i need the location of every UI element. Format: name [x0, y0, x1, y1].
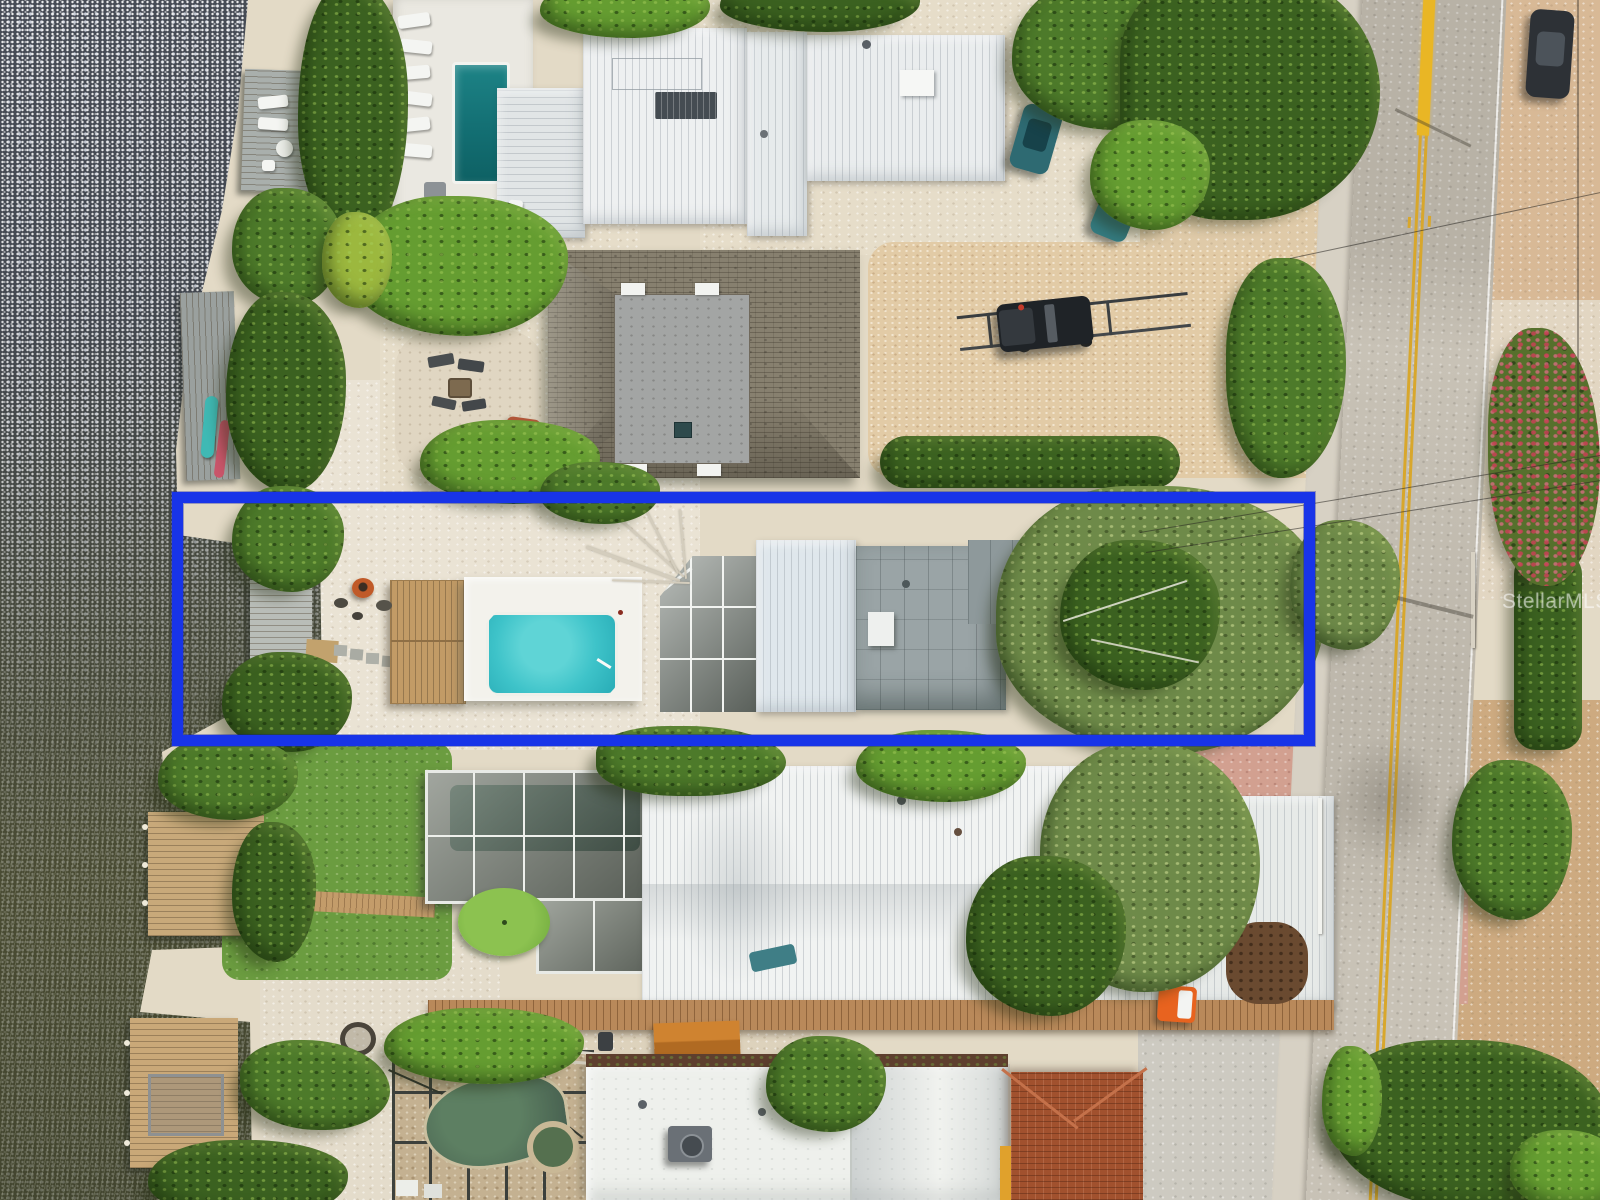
yellow-dash-1 [1408, 217, 1412, 228]
enclosure-shade [428, 773, 670, 901]
aerial-photo-scene: StellarMLS [0, 0, 1600, 1200]
gray-car [1525, 9, 1575, 100]
trash-bin [598, 1032, 613, 1051]
driveway-hedge-south [880, 436, 1180, 488]
roof-vent-dot [758, 1108, 766, 1116]
roof-flat-center [614, 294, 750, 464]
terracotta-ridge [1073, 1067, 1148, 1122]
skylight [697, 464, 721, 476]
trailer-crossbar [986, 313, 993, 348]
round-planter [660, 1086, 678, 1104]
yellow-dash-2 [1428, 216, 1432, 227]
bottom-right-palm [1510, 1130, 1600, 1200]
roof-vent-dot [954, 828, 962, 836]
extension-frame-v [593, 901, 595, 971]
boat-lift-frame [148, 1074, 224, 1136]
white-fence-gate [1318, 798, 1322, 934]
dock-piling [142, 824, 148, 830]
enclosure-frame-v [573, 773, 575, 901]
enclosure-frame-v [523, 773, 525, 901]
top-right-palm [1090, 120, 1210, 230]
roof-ac-unit [668, 1126, 712, 1162]
mangrove-by-kayak-dock [226, 292, 346, 492]
yellow-green-palm [322, 212, 392, 308]
roof-skylight-outline [612, 58, 702, 90]
tree-over-paver-drive [966, 856, 1126, 1016]
enclosure-frame-v [623, 773, 625, 901]
enclosure-frame-v [473, 773, 475, 901]
truck-windshield [1044, 304, 1058, 343]
fresh-paint-segment [1417, 0, 1437, 136]
roof-solar-vent [655, 92, 717, 119]
yellow-edge-object [1000, 1146, 1011, 1200]
dock-round-table [276, 140, 293, 157]
roof-vent-dot [638, 1100, 647, 1109]
property-boundary-outline [172, 492, 1315, 746]
cooler-lid [1177, 990, 1193, 1019]
roof-vent-dot [862, 40, 871, 49]
north-house-center-roof [747, 32, 807, 236]
mangrove-lawn-edge [232, 822, 316, 962]
dock-chair [262, 160, 275, 171]
small-bush-roadside [1322, 1046, 1382, 1156]
enclosure-frame-h [428, 835, 670, 837]
fire-table [448, 378, 472, 398]
truck-bed [998, 307, 1036, 346]
right-shoulder-bushes [1452, 760, 1572, 920]
palms-bottom-center [766, 1036, 886, 1132]
north-house-east-roof [807, 35, 1005, 181]
dock-piling [142, 900, 148, 906]
pool-equipment-box [396, 1180, 418, 1196]
dock-piling [142, 862, 148, 868]
dock-lounge-chair [258, 117, 289, 131]
watermark: StellarMLS [1502, 590, 1600, 614]
east-roof-vent [900, 70, 934, 96]
pool-equipment-box [424, 1184, 442, 1198]
terracotta-roof [1011, 1072, 1143, 1200]
mangrove-south-shore [158, 736, 298, 820]
dock-piling [124, 1090, 130, 1096]
trailer-crossbar [1106, 300, 1113, 335]
putting-hole [502, 920, 507, 925]
skylight [621, 283, 645, 295]
ac-fan [680, 1134, 704, 1158]
chimney [674, 422, 692, 438]
bottom-left-trees [148, 1140, 348, 1200]
black-pickup-truck [996, 295, 1095, 353]
utility-pole [1471, 552, 1475, 648]
palms-over-cage [384, 1008, 584, 1084]
car-roof-glass [1535, 31, 1565, 67]
spa-circle [527, 1121, 579, 1173]
putting-green [458, 888, 550, 956]
skylight [695, 283, 719, 295]
terracotta-ridge [1001, 1068, 1078, 1129]
asphalt-stain [1328, 732, 1444, 867]
roadside-line [1577, 0, 1579, 560]
suv-roof-glass [1021, 117, 1052, 152]
dock-piling [124, 1040, 130, 1046]
roof-vent-dot [760, 130, 768, 138]
dock-piling [124, 1140, 130, 1146]
